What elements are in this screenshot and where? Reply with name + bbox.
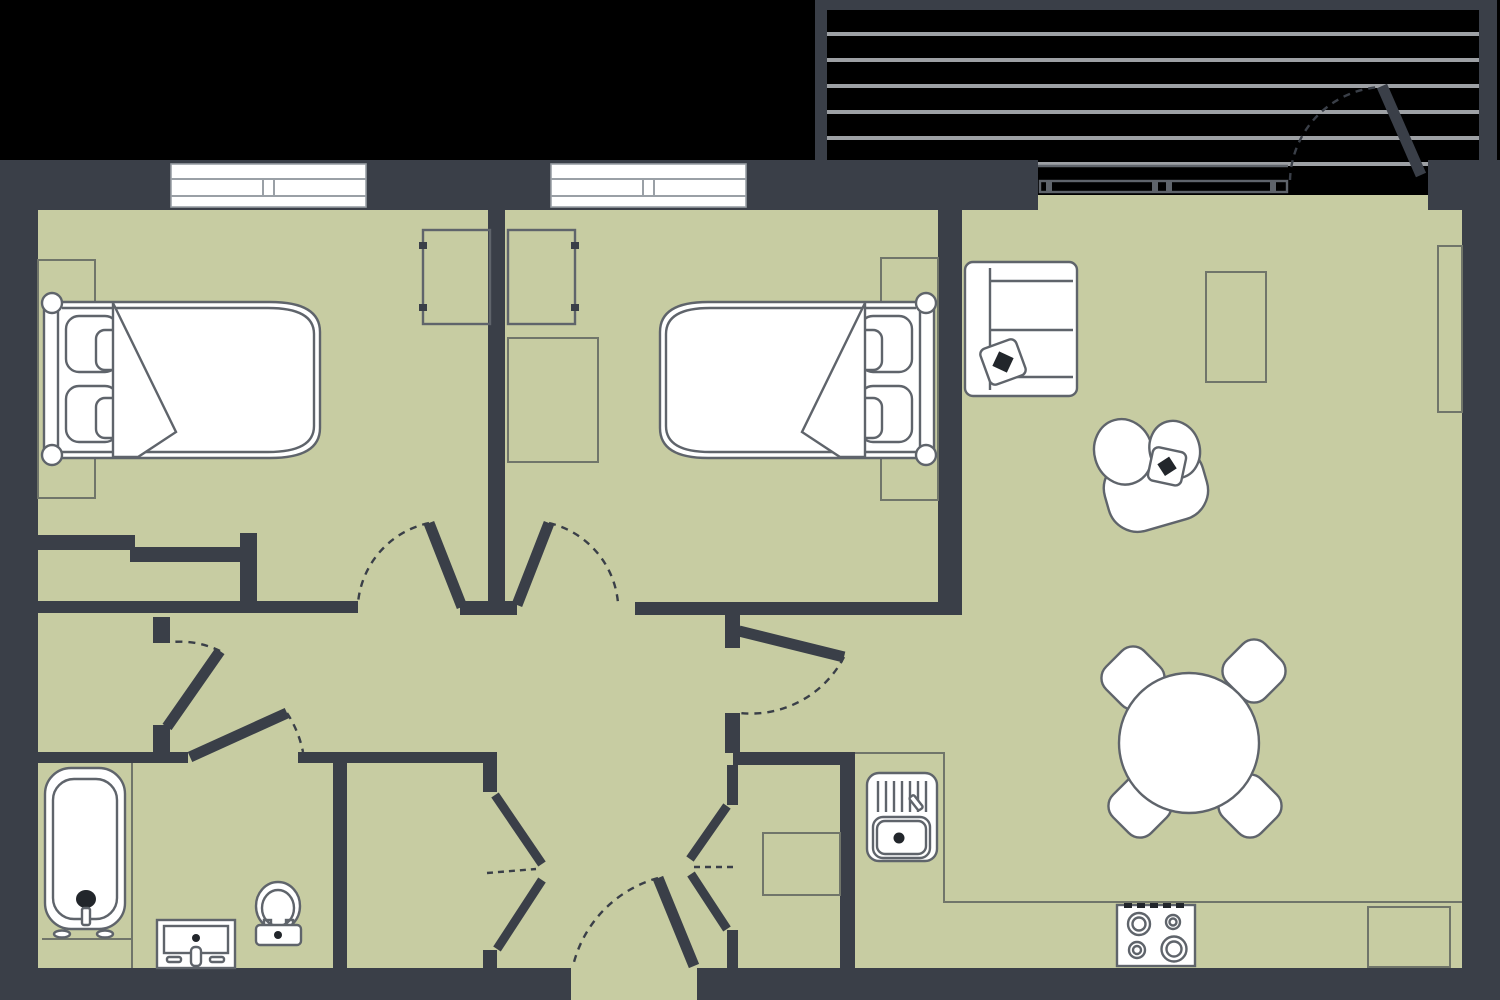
- double-bed: [42, 293, 320, 465]
- wall-storage-stub-top: [483, 763, 497, 792]
- wall-bedroom2-living: [938, 195, 962, 615]
- wall-bathroom-storage-divider: [333, 763, 347, 968]
- wall-bedroom-door-block: [460, 601, 517, 615]
- wall-utility-left-top: [727, 765, 738, 805]
- tub-drain: [76, 890, 96, 908]
- wall-bedroom2-bottom: [635, 602, 938, 615]
- washbasin-vanity: [157, 920, 235, 968]
- wall-living-door-stub: [725, 613, 740, 648]
- floor-plan-svg: [0, 0, 1500, 1000]
- round-dining-table: [1119, 673, 1259, 813]
- wall-hall-stub-bottom: [153, 725, 170, 752]
- bed-post: [916, 445, 936, 465]
- wall-bedroom1-bottom-a: [38, 535, 135, 550]
- balcony-frame-left: [815, 0, 827, 163]
- wall-bathroom-top-left: [38, 752, 188, 763]
- bed-post: [916, 293, 936, 313]
- toilet: [256, 882, 301, 945]
- wall-top-right-corner: [1428, 160, 1500, 210]
- wall-outer-bottom-left: [0, 968, 571, 1000]
- basin-drain: [192, 934, 200, 942]
- sink-drain: [894, 833, 905, 844]
- throw-pillow: [1147, 446, 1187, 486]
- double-bed: [660, 293, 936, 465]
- wall-outer-bottom-right: [697, 968, 1500, 1000]
- kitchen-sink: [867, 773, 937, 861]
- stove: [1117, 903, 1195, 966]
- tub-foot: [54, 931, 70, 938]
- floor-balcony-door-strip: [1038, 195, 1428, 215]
- balcony-decking-slats: [827, 34, 1479, 164]
- wall-outer-left: [0, 160, 38, 1000]
- wall-top-balcony-side: [815, 160, 1038, 210]
- wall-storage-stub-bottom: [483, 950, 497, 968]
- bed-post: [42, 293, 62, 313]
- bedroom-1-window: [171, 164, 366, 207]
- bathtub: [45, 768, 125, 938]
- basin-tap: [191, 947, 201, 966]
- wall-bedroom1-bottom-b: [130, 547, 240, 562]
- wall-hall-stub-top: [153, 617, 170, 643]
- wall-nook-right: [240, 533, 257, 613]
- floor-plan-canvas: [0, 0, 1500, 1000]
- bedroom-2-window: [551, 164, 746, 207]
- flush-button: [274, 931, 282, 939]
- wall-utility-left-bottom: [727, 930, 738, 968]
- balcony-sliding-glazing: [1038, 166, 1288, 192]
- wall-bathroom-top-right: [298, 752, 497, 763]
- wall-hall-living-mid: [725, 713, 740, 753]
- wall-utility-top: [733, 752, 855, 765]
- tub-tap: [82, 908, 90, 925]
- sofa: [965, 262, 1077, 396]
- tub-foot: [97, 931, 113, 938]
- wall-hall-top-left: [38, 601, 358, 613]
- wall-utility-right: [840, 765, 855, 968]
- wall-outer-right: [1462, 210, 1500, 1000]
- bed-post: [42, 445, 62, 465]
- balcony-frame-right: [1479, 0, 1497, 165]
- floor-entrance-recess: [571, 968, 697, 1000]
- balcony-frame-top: [815, 0, 1497, 10]
